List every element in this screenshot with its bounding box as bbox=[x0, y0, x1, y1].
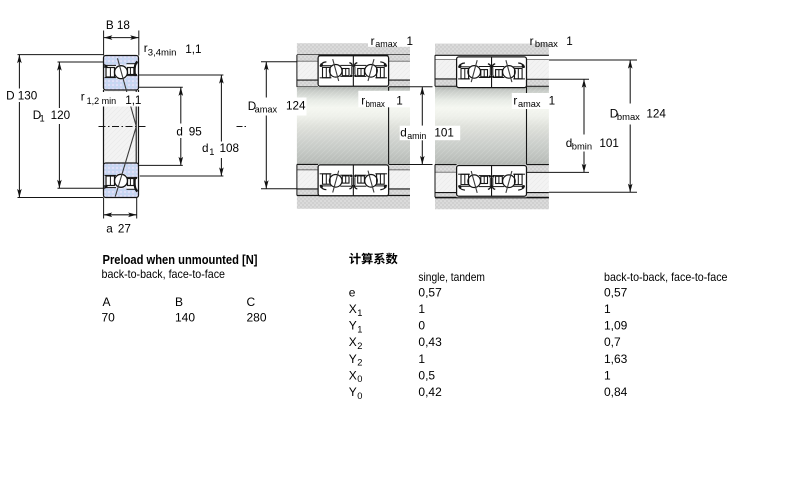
svg-text:bmin: bmin bbox=[572, 141, 592, 151]
svg-text:back-to-back, face-to-face: back-to-back, face-to-face bbox=[102, 267, 226, 281]
svg-text:1,1: 1,1 bbox=[125, 94, 141, 107]
svg-text:D: D bbox=[6, 89, 14, 102]
svg-text:124: 124 bbox=[286, 100, 306, 113]
svg-text:X: X bbox=[349, 368, 357, 382]
svg-text:1: 1 bbox=[209, 147, 214, 157]
svg-text:amax: amax bbox=[375, 39, 397, 49]
svg-text:3,4min: 3,4min bbox=[148, 47, 177, 57]
svg-text:bmax: bmax bbox=[617, 112, 640, 122]
svg-text:108: 108 bbox=[220, 142, 240, 155]
svg-text:280: 280 bbox=[247, 310, 267, 324]
svg-text:0,5: 0,5 bbox=[418, 368, 435, 382]
svg-text:0,7: 0,7 bbox=[604, 335, 621, 349]
svg-text:0: 0 bbox=[357, 374, 362, 384]
svg-text:amin: amin bbox=[407, 131, 426, 141]
svg-text:1: 1 bbox=[604, 302, 611, 316]
svg-text:1,1: 1,1 bbox=[185, 43, 201, 56]
svg-text:101: 101 bbox=[599, 137, 619, 150]
svg-text:1: 1 bbox=[40, 114, 45, 124]
svg-text:1,2 min: 1,2 min bbox=[87, 96, 117, 106]
svg-text:d: d bbox=[176, 126, 183, 139]
svg-text:A: A bbox=[103, 295, 111, 309]
svg-text:r: r bbox=[530, 35, 534, 48]
svg-text:Y: Y bbox=[349, 319, 357, 333]
svg-text:0,84: 0,84 bbox=[604, 385, 628, 399]
svg-text:18: 18 bbox=[117, 19, 130, 32]
svg-text:70: 70 bbox=[102, 310, 116, 324]
svg-text:124: 124 bbox=[646, 108, 666, 121]
svg-text:1: 1 bbox=[357, 324, 362, 334]
svg-text:single, tandem: single, tandem bbox=[418, 270, 485, 284]
svg-text:0: 0 bbox=[418, 319, 425, 333]
svg-text:0,57: 0,57 bbox=[604, 285, 628, 299]
svg-text:bmax: bmax bbox=[535, 39, 558, 49]
svg-text:1: 1 bbox=[604, 368, 611, 382]
svg-text:B: B bbox=[106, 19, 114, 32]
svg-text:0,43: 0,43 bbox=[418, 335, 442, 349]
svg-text:1: 1 bbox=[396, 94, 403, 107]
svg-text:1,63: 1,63 bbox=[604, 352, 628, 366]
svg-text:2: 2 bbox=[357, 358, 362, 368]
svg-text:1: 1 bbox=[566, 35, 573, 48]
svg-text:1: 1 bbox=[418, 302, 425, 316]
svg-text:e: e bbox=[349, 285, 356, 299]
svg-text:1,09: 1,09 bbox=[604, 319, 628, 333]
svg-text:1: 1 bbox=[549, 94, 556, 107]
svg-text:140: 140 bbox=[175, 310, 195, 324]
svg-text:1: 1 bbox=[357, 308, 362, 318]
svg-text:back-to-back, face-to-face: back-to-back, face-to-face bbox=[604, 270, 728, 284]
svg-text:1: 1 bbox=[418, 352, 425, 366]
svg-text:Y: Y bbox=[349, 385, 357, 399]
svg-text:a: a bbox=[106, 223, 113, 236]
svg-text:1: 1 bbox=[407, 35, 414, 48]
svg-text:bmax: bmax bbox=[366, 99, 386, 109]
svg-text:Y: Y bbox=[349, 352, 357, 366]
svg-text:d: d bbox=[400, 127, 407, 140]
svg-text:X: X bbox=[349, 302, 357, 316]
svg-text:0,57: 0,57 bbox=[418, 285, 442, 299]
svg-text:95: 95 bbox=[189, 126, 203, 139]
svg-text:r: r bbox=[81, 91, 85, 104]
svg-text:0: 0 bbox=[357, 391, 362, 401]
svg-text:0,42: 0,42 bbox=[418, 385, 442, 399]
svg-text:r: r bbox=[371, 35, 375, 48]
svg-text:Preload when unmounted [N]: Preload when unmounted [N] bbox=[103, 253, 258, 267]
svg-text:27: 27 bbox=[118, 223, 131, 236]
svg-text:120: 120 bbox=[51, 109, 71, 122]
svg-text:C: C bbox=[247, 295, 256, 309]
svg-text:101: 101 bbox=[434, 127, 454, 140]
svg-text:2: 2 bbox=[357, 341, 362, 351]
svg-text:X: X bbox=[349, 335, 357, 349]
svg-text:amax: amax bbox=[255, 104, 278, 114]
svg-text:r: r bbox=[513, 94, 517, 107]
svg-text:130: 130 bbox=[18, 89, 38, 102]
svg-text:amax: amax bbox=[518, 99, 541, 109]
svg-text:B: B bbox=[175, 295, 183, 309]
svg-text:d: d bbox=[202, 142, 209, 155]
